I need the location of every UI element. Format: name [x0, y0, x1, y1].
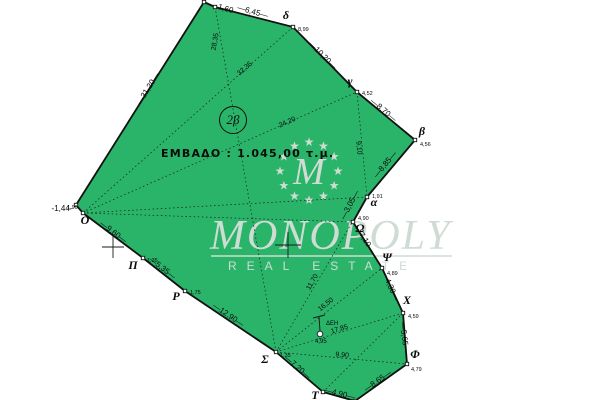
- parcel-id-badge: 2β: [219, 106, 247, 134]
- vertex-label: Χ: [402, 293, 412, 307]
- star-icon: ★: [275, 164, 286, 178]
- plan-drawing: ★★★★★★★★★★★★MMONOPOLYREAL ESTATE32,3524,…: [0, 0, 600, 400]
- vertex-elevation: 4,90: [358, 216, 369, 222]
- star-icon: ★: [279, 179, 290, 193]
- utility-pole-measure: 4,95: [315, 339, 327, 345]
- boundary-vertex-marker: [405, 362, 408, 365]
- vertex-elevation: 1,75: [190, 290, 201, 296]
- boundary-vertex-marker: [183, 289, 186, 292]
- vertex-elevation: 4,56: [420, 142, 431, 148]
- vertex-elevation: 4,79: [411, 367, 422, 373]
- vertex-elevation: 4,89: [387, 271, 398, 277]
- vertex-label: δ: [283, 8, 289, 22]
- vertex-elevation: 1,35: [147, 258, 158, 264]
- vertex-elevation: 8,99: [298, 27, 309, 33]
- boundary-vertex-marker: [291, 25, 294, 28]
- vertex-label: Ψ: [382, 250, 393, 264]
- triangulation-measure: 9,10: [354, 141, 362, 155]
- vertex-elevation: 4,52: [362, 91, 373, 97]
- vertex-label: Π: [127, 258, 138, 272]
- vertex-label: Ω: [356, 221, 365, 235]
- vertex-label: Σ: [260, 352, 269, 366]
- boundary-vertex-marker: [351, 220, 354, 223]
- boundary-vertex-marker: [274, 350, 277, 353]
- utility-pole-label: ΔΕΗ: [326, 321, 338, 327]
- parcel-id: 2β: [227, 112, 240, 128]
- vertex-label: γ: [348, 74, 353, 88]
- vertex-label: Ρ: [172, 289, 180, 303]
- star-icon: ★: [329, 179, 340, 193]
- survey-plan: ★★★★★★★★★★★★MMONOPOLYREAL ESTATE32,3524,…: [0, 0, 600, 400]
- boundary-vertex-marker: [202, 0, 205, 3]
- area-label: ΕΜΒΑΔΟ : 1.045,00 τ.μ.: [161, 147, 334, 160]
- boundary-vertex-marker: [213, 5, 216, 8]
- boundary-vertex-marker: [355, 90, 358, 93]
- triangulation-measure: 9,90: [335, 351, 349, 359]
- boundary-vertex-marker: [365, 195, 368, 198]
- boundary-vertex-marker: [321, 390, 324, 393]
- star-icon: ★: [333, 164, 344, 178]
- vertex-label: Τ: [311, 388, 319, 400]
- vertex-elevation: 4,59: [408, 314, 419, 320]
- boundary-vertex-marker: [141, 256, 144, 259]
- vertex-label: β: [418, 124, 426, 138]
- vertex-label: Φ: [410, 347, 420, 361]
- vertex-elevation: 1,90: [67, 205, 78, 211]
- utility-pole-base: [317, 331, 323, 337]
- boundary-vertex-marker: [401, 311, 404, 314]
- watermark-brand: MONOPOLY: [209, 213, 454, 259]
- boundary-vertex-marker: [380, 266, 383, 269]
- vertex-label: Ο: [81, 213, 90, 227]
- vertex-elevation: 1,91: [372, 194, 383, 200]
- boundary-vertex-marker: [413, 138, 416, 141]
- vertex-elevation: 1,35: [280, 353, 291, 359]
